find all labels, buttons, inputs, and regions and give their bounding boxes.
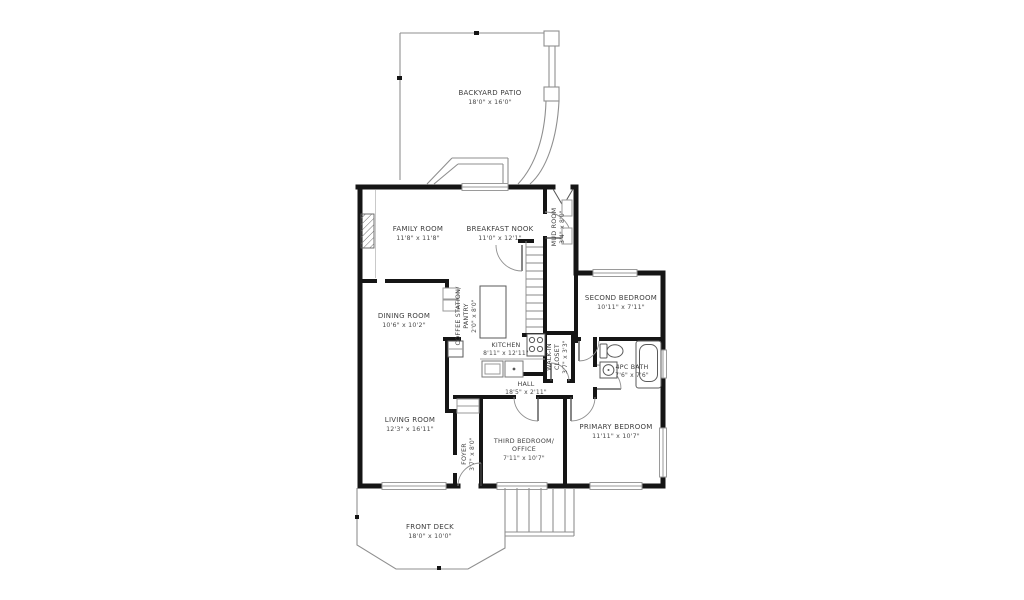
mud-room-name: MUD ROOM <box>551 208 558 247</box>
dining-room-label: DINING ROOM 10'6" x 10'2" <box>378 312 430 329</box>
second-bedroom-label: SECOND BEDROOM 10'11" x 7'11" <box>585 294 657 311</box>
front-deck-label: FRONT DECK 18'0" x 10'0" <box>406 523 454 540</box>
floor-plan-canvas: BACKYARD PATIO 18'0" x 16'0" FAMILY ROOM… <box>0 0 1024 600</box>
family-room-name: FAMILY ROOM <box>393 225 443 233</box>
primary-bedroom-window <box>590 483 642 490</box>
foyer-dims: 3'7" x 8'0" <box>469 437 476 471</box>
mud-room-dims: 3'4" x 8'0" <box>559 210 566 244</box>
backyard-patio-outline <box>400 31 559 184</box>
hall-dims: 18'5" x 2'11" <box>505 389 547 396</box>
bath-label: 4PC BATH 7'6" x 7'6" <box>615 364 649 379</box>
backyard-patio-dims: 18'0" x 16'0" <box>468 99 512 106</box>
bath-dims: 7'6" x 7'6" <box>615 372 649 379</box>
basement-stairs <box>526 241 543 333</box>
walk-in-closet-dims: 3'7" x 3'3" <box>562 340 569 374</box>
coffee-station-label: COFFEE STATION/ PANTRY 2'0" x 8'0" <box>455 286 478 346</box>
living-room-name: LIVING ROOM <box>385 416 435 424</box>
kitchen-name: KITCHEN <box>491 342 520 349</box>
hall-name: HALL <box>517 381 534 388</box>
fireplace <box>361 190 376 278</box>
foyer-closet <box>457 399 479 413</box>
breakfast-nook-name: BREAKFAST NOOK <box>467 225 534 233</box>
primary-bedroom-side-window <box>660 428 667 477</box>
living-room-label: LIVING ROOM 12'3" x 16'11" <box>385 416 435 433</box>
dining-room-dims: 10'6" x 10'2" <box>382 322 426 329</box>
third-bedroom-name: THIRD BEDROOM/ <box>493 438 555 445</box>
patio-dimension-ticks <box>397 31 479 80</box>
primary-bedroom-label: PRIMARY BEDROOM 11'11" x 10'7" <box>579 423 652 440</box>
hall-label: HALL 18'5" x 2'11" <box>505 381 547 396</box>
dining-room-name: DINING ROOM <box>378 312 430 320</box>
walk-in-closet-name2: CLOSET <box>554 344 561 370</box>
backyard-patio-name: BACKYARD PATIO <box>458 89 521 97</box>
living-room-window <box>382 483 446 490</box>
family-room-dims: 11'8" x 11'8" <box>396 235 440 242</box>
second-bedroom-name: SECOND BEDROOM <box>585 294 657 302</box>
stove <box>527 334 545 356</box>
coffee-station-name: COFFEE STATION/ <box>455 286 462 346</box>
front-deck-outline <box>357 488 574 569</box>
breakfast-nook-dims: 11'0" x 12'1" <box>478 235 522 242</box>
third-bedroom-name2: OFFICE <box>512 446 536 453</box>
kitchen-label: KITCHEN 8'11" x 12'11" <box>483 342 529 357</box>
toilet <box>600 344 623 358</box>
family-room-label: FAMILY ROOM 11'8" x 11'8" <box>393 225 443 242</box>
kitchen-dims: 8'11" x 12'11" <box>483 350 529 357</box>
third-bedroom-dims: 7'11" x 10'7" <box>503 455 545 462</box>
front-deck-name: FRONT DECK <box>406 523 454 531</box>
primary-bedroom-name: PRIMARY BEDROOM <box>579 423 652 431</box>
coffee-station-dims: 2'0" x 8'0" <box>471 299 478 333</box>
foyer-label: FOYER 3'7" x 8'0" <box>461 437 476 471</box>
second-bedroom-dims: 10'11" x 7'11" <box>597 304 645 311</box>
foyer-name: FOYER <box>461 443 468 465</box>
floor-plan-page: BACKYARD PATIO 18'0" x 16'0" FAMILY ROOM… <box>0 0 1024 600</box>
second-bedroom-window <box>593 270 637 277</box>
front-deck-dims: 18'0" x 10'0" <box>408 533 452 540</box>
bath-name: 4PC BATH <box>616 364 649 371</box>
patio-sliding-door <box>462 184 508 191</box>
third-bedroom-label: THIRD BEDROOM/ OFFICE 7'11" x 10'7" <box>493 438 555 462</box>
coffee-station-name2: PANTRY <box>463 303 470 329</box>
primary-bedroom-dims: 11'11" x 10'7" <box>592 433 640 440</box>
mud-room-label: MUD ROOM 3'4" x 8'0" <box>551 208 566 247</box>
walk-in-closet-label: WALK-IN CLOSET 3'7" x 3'3" <box>546 340 569 374</box>
living-room-dims: 12'3" x 16'11" <box>386 426 434 433</box>
room-labels: BACKYARD PATIO 18'0" x 16'0" FAMILY ROOM… <box>378 89 657 540</box>
deck-stairs <box>505 488 574 536</box>
backyard-patio-label: BACKYARD PATIO 18'0" x 16'0" <box>458 89 521 106</box>
walk-in-closet-name: WALK-IN <box>546 343 553 371</box>
kitchen-island <box>480 286 506 338</box>
